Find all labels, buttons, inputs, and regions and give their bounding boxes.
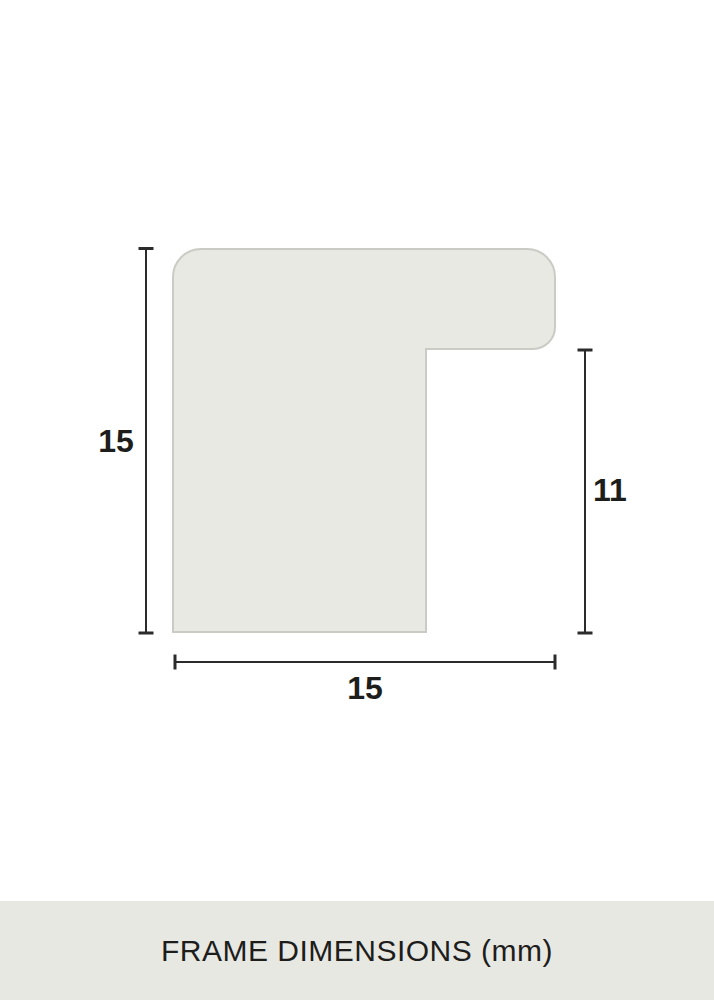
- dimension-label-bottom: 15: [347, 672, 383, 704]
- footer-caption: FRAME DIMENSIONS (mm): [161, 934, 553, 968]
- footer-bar: FRAME DIMENSIONS (mm): [0, 901, 714, 1000]
- dimension-bottom: [175, 655, 555, 670]
- dimension-label-left: 15: [98, 425, 134, 457]
- frame-dimension-diagram: 15 11 15 FRAME DIMENSIONS (mm): [0, 0, 714, 1000]
- dimension-label-right: 11: [593, 474, 627, 506]
- frame-profile-shape: [173, 249, 555, 632]
- dimension-left: [139, 249, 154, 634]
- dimension-right: [578, 350, 593, 633]
